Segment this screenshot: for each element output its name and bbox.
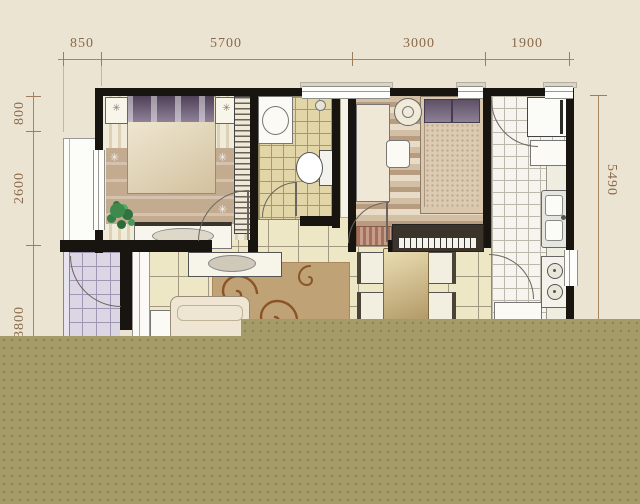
wall-bathroom-bottom xyxy=(300,216,332,226)
sink-basin xyxy=(545,195,563,216)
stove-burner xyxy=(547,263,563,279)
bedroom2-door-leaf xyxy=(386,202,388,242)
dim-extension xyxy=(101,66,102,86)
dim-top-3000: 3000 xyxy=(389,37,449,51)
censor-block-bottom xyxy=(0,336,640,504)
wall-bathroom-right xyxy=(332,88,340,228)
window-right-kitchen xyxy=(564,250,578,286)
kitchen-sink xyxy=(541,190,568,248)
bedroom2-stool xyxy=(394,98,422,126)
window-left-bedroom xyxy=(93,150,105,230)
dim-right-5490: 5490 xyxy=(604,158,618,202)
potted-plant xyxy=(110,203,125,218)
dim-line-right xyxy=(598,95,599,321)
sink-basin xyxy=(545,220,563,241)
dim-line-left xyxy=(33,92,34,337)
dim-tick xyxy=(485,52,486,66)
dining-chair xyxy=(357,252,386,284)
tv-set xyxy=(208,255,256,272)
window-top-kitchen xyxy=(545,86,573,99)
nightstand-left: ✳ xyxy=(105,97,128,124)
dim-tick xyxy=(26,245,41,246)
wall-bathroom-left xyxy=(250,88,258,252)
dim-tick xyxy=(590,95,607,96)
dim-left-800: 800 xyxy=(13,93,27,133)
window-top-center xyxy=(302,86,390,99)
balcony-door-threshold xyxy=(132,252,150,338)
toilet-bowl xyxy=(296,152,323,184)
dim-tick xyxy=(63,52,64,66)
balcony-window-wall xyxy=(63,252,70,338)
wall-balcony-right xyxy=(120,252,132,330)
dim-tick xyxy=(569,52,570,66)
wall-right-upper xyxy=(566,88,574,250)
shower-drain xyxy=(315,100,326,111)
piano-keys xyxy=(398,238,476,248)
dim-tick xyxy=(352,52,353,66)
bedroom2-chair xyxy=(386,140,410,168)
dim-extension xyxy=(63,66,64,132)
rug-flower-motif: ✳ xyxy=(110,152,119,163)
bedroom2-pillow xyxy=(424,99,452,123)
dim-line-top xyxy=(58,59,574,60)
master-bedroom-door-leaf xyxy=(247,190,249,240)
bathroom-sink-basin xyxy=(262,106,289,135)
rug-flower-motif: ✳ xyxy=(218,152,227,163)
wall-bedroom-bottom xyxy=(60,240,212,252)
dim-tick xyxy=(26,96,41,97)
bedroom2-pillow xyxy=(452,99,480,123)
wall-left-upper xyxy=(95,88,103,152)
window-top-bedroom2 xyxy=(458,86,483,99)
bedroom2-wardrobe xyxy=(356,104,390,202)
bathroom-door-leaf xyxy=(295,182,297,216)
stove-burner xyxy=(547,284,563,300)
dim-tick xyxy=(101,52,102,66)
dim-tick xyxy=(26,131,41,132)
dim-left-2600: 2600 xyxy=(13,168,27,208)
dim-top-1900: 1900 xyxy=(497,37,557,51)
dim-top-5700: 5700 xyxy=(196,37,256,51)
bedroom2-mattress xyxy=(424,123,479,207)
floor-plan-image: 850 5700 3000 1900 800 2600 3800 5490 ✳ … xyxy=(0,0,640,504)
dining-chair xyxy=(427,252,456,284)
master-bed-pillows xyxy=(127,96,214,122)
wall-kitchen-left xyxy=(483,88,491,248)
dim-top-850: 850 xyxy=(62,37,102,51)
